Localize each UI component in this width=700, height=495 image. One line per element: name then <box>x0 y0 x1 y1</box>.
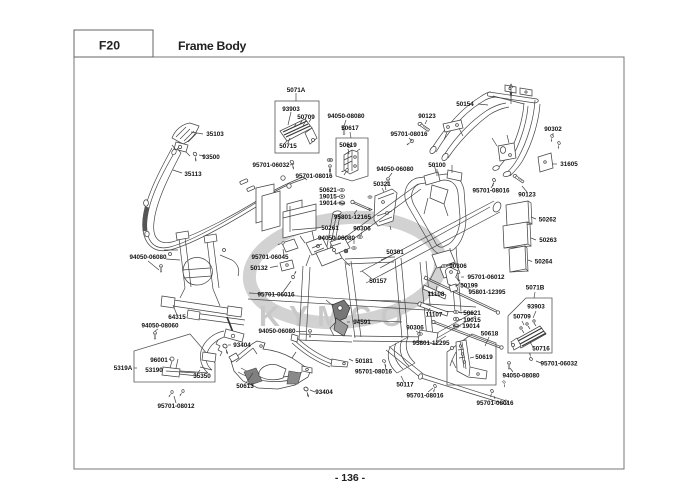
svg-text:11108: 11108 <box>428 291 445 298</box>
svg-text:95701-06012: 95701-06012 <box>467 274 505 281</box>
svg-text:35113: 35113 <box>184 171 202 178</box>
svg-text:94050-06080: 94050-06080 <box>318 235 356 242</box>
svg-text:50261: 50261 <box>321 225 339 232</box>
svg-text:5319A: 5319A <box>114 365 133 372</box>
svg-text:93903: 93903 <box>527 304 545 311</box>
svg-text:11107: 11107 <box>426 312 443 319</box>
svg-text:96001: 96001 <box>150 357 168 364</box>
svg-text:50264: 50264 <box>535 259 553 266</box>
svg-text:50621: 50621 <box>463 310 481 317</box>
svg-text:90306: 90306 <box>353 226 371 233</box>
svg-text:50262: 50262 <box>539 217 557 224</box>
svg-text:95701-08016: 95701-08016 <box>355 369 393 376</box>
svg-text:95701-06045: 95701-06045 <box>251 254 289 261</box>
svg-text:19014: 19014 <box>462 323 480 330</box>
svg-text:94591: 94591 <box>353 319 371 326</box>
svg-text:94050-06080: 94050-06080 <box>376 166 414 173</box>
svg-text:50301: 50301 <box>386 249 404 256</box>
svg-text:94050-08060: 94050-08060 <box>141 323 179 330</box>
svg-text:31605: 31605 <box>560 161 578 168</box>
svg-text:94050-06080: 94050-06080 <box>129 254 167 261</box>
svg-text:- 136 -: - 136 - <box>335 472 366 484</box>
svg-text:50716: 50716 <box>532 346 550 353</box>
svg-text:50619: 50619 <box>475 354 493 361</box>
svg-text:50100: 50100 <box>428 162 446 169</box>
svg-text:95701-06032: 95701-06032 <box>540 361 578 368</box>
svg-text:90123: 90123 <box>518 192 536 199</box>
svg-text:93500: 93500 <box>202 154 220 161</box>
svg-text:35350: 35350 <box>193 373 211 380</box>
svg-text:50263: 50263 <box>539 237 557 244</box>
svg-text:50709: 50709 <box>297 114 315 121</box>
svg-text:50617: 50617 <box>341 125 359 132</box>
svg-text:94050-08080: 94050-08080 <box>327 113 365 120</box>
svg-text:53190: 53190 <box>145 367 163 374</box>
svg-text:F20: F20 <box>99 39 120 53</box>
svg-text:95701-08016: 95701-08016 <box>476 400 514 407</box>
svg-text:5071B: 5071B <box>526 285 545 292</box>
svg-text:50709: 50709 <box>513 314 531 321</box>
svg-text:50613: 50613 <box>236 383 254 390</box>
svg-text:95701-08016: 95701-08016 <box>472 188 510 195</box>
svg-text:94050-06080: 94050-06080 <box>258 328 296 335</box>
svg-text:50132: 50132 <box>250 265 268 272</box>
svg-text:5071A: 5071A <box>287 87 306 94</box>
svg-text:50117: 50117 <box>396 382 414 389</box>
svg-text:50157: 50157 <box>369 278 387 285</box>
svg-text:50154: 50154 <box>456 101 474 108</box>
svg-text:90306: 90306 <box>406 325 424 332</box>
svg-text:94050-08080: 94050-08080 <box>502 373 540 380</box>
svg-text:50321: 50321 <box>373 181 391 188</box>
svg-text:90123: 90123 <box>418 113 436 120</box>
svg-text:95801-12165: 95801-12165 <box>334 214 372 221</box>
svg-text:50618: 50618 <box>481 331 499 338</box>
svg-text:90302: 90302 <box>544 126 562 133</box>
svg-text:93404: 93404 <box>315 389 333 396</box>
svg-text:95701-08016: 95701-08016 <box>406 393 444 400</box>
svg-text:35103: 35103 <box>206 131 224 138</box>
svg-text:95701-06032: 95701-06032 <box>252 162 290 169</box>
svg-text:64315: 64315 <box>168 314 186 321</box>
svg-text:50715: 50715 <box>279 143 297 150</box>
svg-text:95701-08012: 95701-08012 <box>157 403 195 410</box>
svg-text:95801-12295: 95801-12295 <box>412 340 450 347</box>
svg-text:19014: 19014 <box>319 200 337 207</box>
svg-text:50181: 50181 <box>355 358 373 365</box>
svg-text:95801-12395: 95801-12395 <box>468 289 506 296</box>
svg-text:93404: 93404 <box>233 342 251 349</box>
svg-text:95701-08016: 95701-08016 <box>295 173 333 180</box>
svg-text:95701-08016: 95701-08016 <box>390 131 428 138</box>
svg-text:95701-06016: 95701-06016 <box>257 292 295 299</box>
svg-text:90306: 90306 <box>449 263 467 270</box>
svg-text:93903: 93903 <box>282 106 300 113</box>
svg-text:Frame Body: Frame Body <box>178 39 247 53</box>
svg-text:50619: 50619 <box>339 142 357 149</box>
